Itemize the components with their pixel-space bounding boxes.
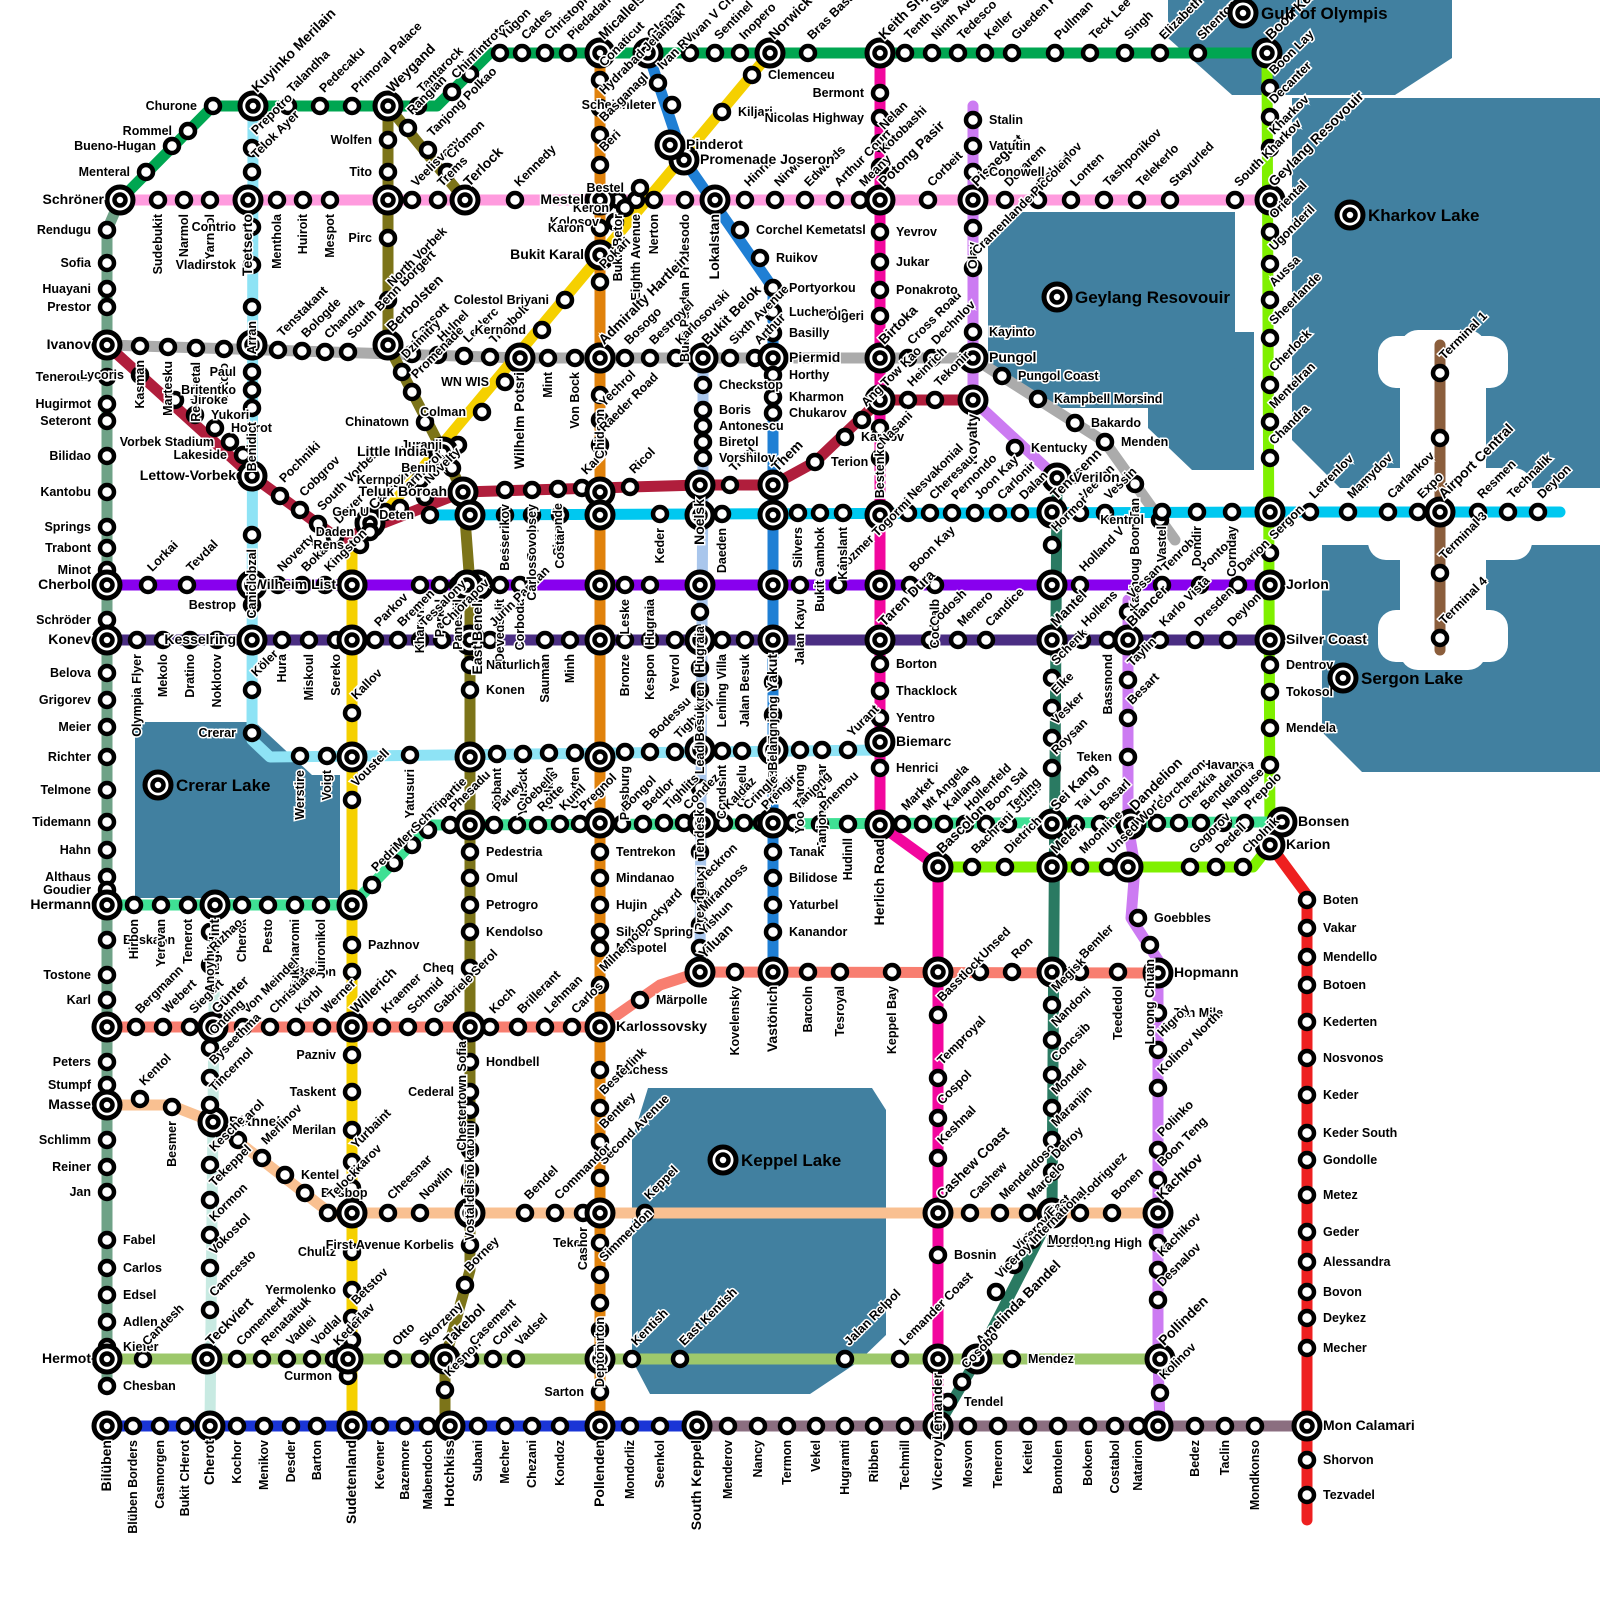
station-mendeldoso[interactable] [993, 1206, 1007, 1220]
station-marcelo[interactable] [1021, 1206, 1035, 1220]
station-christopher[interactable] [538, 46, 552, 60]
station-second-avenue[interactable] [593, 1171, 607, 1185]
interchange-junction[interactable] [1145, 1413, 1171, 1439]
station-narmol[interactable] [177, 193, 191, 207]
interchange-icon[interactable] [202, 892, 228, 918]
station-tidemann[interactable] [100, 815, 114, 829]
station-leclerc[interactable] [457, 349, 471, 363]
interchange-icon[interactable] [587, 744, 613, 770]
station-nirwin[interactable] [768, 193, 782, 207]
interchange-icon[interactable] [94, 627, 120, 653]
station-wn-wis[interactable] [498, 375, 512, 389]
interchange-icon[interactable] [867, 729, 893, 755]
station-borney[interactable] [458, 1278, 472, 1292]
station-lonten[interactable] [1064, 193, 1078, 207]
station-hourot[interactable] [208, 421, 222, 435]
lake-marker-geylang-resovouir[interactable] [1044, 284, 1070, 310]
station-mecher[interactable] [498, 1419, 512, 1433]
station-chesban[interactable] [100, 1379, 114, 1393]
interchange-konev[interactable] [94, 627, 120, 653]
station-camcesto[interactable] [203, 1303, 217, 1317]
station-dalan[interactable] [1013, 506, 1027, 520]
interchange-keith-shy[interactable] [867, 40, 893, 66]
station-cayten[interactable] [568, 746, 582, 760]
interchange-jorlon[interactable] [1257, 572, 1283, 598]
station-kharmon[interactable] [766, 390, 780, 404]
interchange-icon[interactable] [867, 812, 893, 838]
station-reiner[interactable] [100, 1160, 114, 1174]
station-clemenceu[interactable] [745, 68, 759, 82]
station-carlankov[interactable] [1381, 505, 1395, 519]
station-pazniv[interactable] [345, 1048, 359, 1062]
station-tevdal[interactable] [180, 578, 194, 592]
station-tentrekon[interactable] [593, 845, 607, 859]
station-gondolle[interactable] [1300, 1153, 1314, 1167]
station-tekonir[interactable] [928, 393, 942, 407]
interchange-icon[interactable] [587, 810, 613, 836]
station-lemander-coast[interactable] [893, 1352, 907, 1366]
station-nosvonos[interactable] [1300, 1051, 1314, 1065]
interchange-icon[interactable] [457, 1014, 483, 1040]
station-hinrin[interactable] [738, 193, 752, 207]
station-cholnik[interactable] [1236, 860, 1250, 874]
station-mondkonso[interactable] [1248, 1419, 1262, 1433]
station-keller[interactable] [978, 46, 992, 60]
interchange-icon[interactable] [587, 572, 613, 598]
station-termon[interactable] [780, 1419, 794, 1433]
station-menteral[interactable] [139, 165, 153, 179]
station-deylon[interactable] [1531, 505, 1545, 519]
station-chandra[interactable] [1263, 451, 1277, 465]
station-bontolen[interactable] [1051, 1419, 1065, 1433]
station-nancy[interactable] [751, 1419, 765, 1433]
interchange-junction[interactable] [94, 1014, 120, 1040]
station-alessandra[interactable] [1300, 1255, 1314, 1269]
interchange-icon[interactable] [339, 627, 365, 653]
station-technalik[interactable] [1501, 505, 1515, 519]
station-subani[interactable] [471, 1419, 485, 1433]
station-desder[interactable] [284, 1419, 298, 1433]
station-crerar[interactable] [245, 726, 259, 740]
interchange-icon[interactable] [587, 345, 613, 371]
interchange-icon[interactable] [235, 187, 261, 213]
interchange-junction[interactable] [687, 572, 713, 598]
station-barcoln[interactable] [801, 965, 815, 979]
station-chezani[interactable] [525, 1419, 539, 1433]
station-sofia[interactable] [100, 256, 114, 270]
station-comenterk[interactable] [230, 1352, 244, 1366]
interchange-bascolon[interactable] [925, 854, 951, 880]
interchange-junction[interactable] [1115, 854, 1141, 880]
station-yevrol[interactable] [668, 633, 682, 647]
station-kentel[interactable] [278, 1168, 292, 1182]
station-dondir[interactable] [1190, 505, 1204, 519]
station-bosogo[interactable] [618, 351, 632, 365]
station-vekel[interactable] [809, 1419, 823, 1433]
station-terminal-3[interactable] [1433, 566, 1447, 580]
station-candice[interactable] [979, 633, 993, 647]
interchange-airport-central[interactable] [1427, 499, 1453, 525]
station-keshnal[interactable] [931, 1151, 945, 1165]
interchange-hugirdint[interactable] [202, 892, 228, 918]
station-bilidose[interactable] [766, 871, 780, 885]
station-jukonaromi[interactable] [288, 898, 302, 912]
station-singh[interactable] [1118, 46, 1132, 60]
station-tesroyal[interactable] [833, 965, 847, 979]
station-bukit-cherot[interactable] [178, 1419, 192, 1433]
station-dedell[interactable] [1209, 860, 1223, 874]
interchange-cherbol[interactable] [94, 572, 120, 598]
station-bokoen[interactable] [1081, 1419, 1095, 1433]
station-condsint[interactable] [715, 744, 729, 758]
station-pungol-coast[interactable] [995, 369, 1009, 383]
interchange-icon[interactable] [375, 93, 401, 119]
interchange-yiluan[interactable] [687, 959, 713, 985]
station-pochniki[interactable] [273, 489, 287, 503]
station-bosbop[interactable] [298, 1186, 312, 1200]
interchange-icon[interactable] [867, 627, 893, 653]
station-redenetal[interactable] [189, 341, 203, 355]
station-seenkol[interactable] [653, 1419, 667, 1433]
station-menderov[interactable] [721, 1419, 735, 1433]
station-lorong-chuan[interactable] [1143, 938, 1157, 952]
station-desnalov[interactable] [1151, 1293, 1165, 1307]
station-scheichleter[interactable] [665, 98, 679, 112]
station-vorshilov[interactable] [696, 451, 710, 465]
station-metez[interactable] [1300, 1188, 1314, 1202]
interchange-mon-calamari[interactable] [1294, 1413, 1320, 1439]
interchange-icon[interactable] [452, 187, 478, 213]
station-checkstop[interactable] [696, 378, 710, 392]
station-joon-kay[interactable] [968, 506, 982, 520]
station-barton[interactable] [310, 1419, 324, 1433]
station-trent[interactable] [723, 478, 737, 492]
station-kampbell-morsind[interactable] [1031, 392, 1045, 406]
station-voigt[interactable] [320, 749, 334, 763]
station-chezkia[interactable] [1172, 816, 1186, 830]
station-tighnari[interactable] [668, 745, 682, 759]
station-ugonderil[interactable] [1263, 257, 1277, 271]
station-carlonir[interactable] [991, 506, 1005, 520]
station-geder[interactable] [1300, 1225, 1314, 1239]
interchange-icon[interactable] [339, 892, 365, 918]
interchange-icon[interactable] [760, 472, 786, 498]
station-hugraia[interactable] [693, 605, 707, 619]
interchange-royalty[interactable] [960, 387, 986, 413]
station-pirc[interactable] [381, 231, 395, 245]
station-bras-basah[interactable] [801, 46, 815, 60]
station-dempsey[interactable] [525, 483, 539, 497]
station-kondoz[interactable] [553, 1419, 567, 1433]
station-yarnbol[interactable] [203, 193, 217, 207]
station-cades[interactable] [515, 46, 529, 60]
station-dentrov[interactable] [1263, 658, 1277, 672]
station-tokosol[interactable] [1263, 685, 1277, 699]
interchange-junction[interactable] [335, 1346, 361, 1372]
station-besmer[interactable] [165, 1100, 179, 1114]
station-techmill[interactable] [898, 1419, 912, 1433]
interchange-bil-ben[interactable] [94, 1413, 120, 1439]
station-viceroy-international[interactable] [989, 1285, 1003, 1299]
station-paul[interactable] [245, 365, 259, 379]
station-tranbolt[interactable] [483, 350, 497, 364]
station-moonline[interactable] [1073, 860, 1087, 874]
station-dietrich[interactable] [998, 860, 1012, 874]
station-tezvadel[interactable] [1300, 1488, 1314, 1502]
interchange-junction[interactable] [457, 744, 483, 770]
station-deten[interactable] [423, 508, 437, 522]
station-shenton-way[interactable] [1191, 46, 1205, 60]
station-vadsel[interactable] [509, 1352, 523, 1366]
station-inopero[interactable] [733, 46, 747, 60]
station-edsel[interactable] [100, 1288, 114, 1302]
station-omul[interactable] [463, 871, 477, 885]
station-east-kentish[interactable] [673, 1352, 687, 1366]
station-jukar[interactable] [873, 255, 887, 269]
interchange-hermot[interactable] [94, 1346, 120, 1372]
interchange-berbolsten[interactable] [375, 332, 401, 358]
interchange-icon[interactable] [239, 627, 265, 653]
interchange-icon[interactable] [339, 1014, 365, 1040]
station-corbeit[interactable] [921, 193, 935, 207]
station-ricol[interactable] [623, 480, 637, 494]
station-kolinov[interactable] [1153, 1386, 1167, 1400]
station-colman[interactable] [475, 405, 489, 419]
station-bendel[interactable] [518, 1206, 532, 1220]
station-renataituk[interactable] [255, 1352, 269, 1366]
station-yurant[interactable] [841, 743, 855, 757]
lake-marker-gulf-of-olympis[interactable] [1230, 0, 1256, 26]
station-petsburg[interactable] [618, 745, 632, 759]
interchange-icon[interactable] [760, 810, 786, 836]
interchange-icon[interactable] [94, 892, 120, 918]
station-schmid[interactable] [401, 1020, 415, 1034]
station-telmone[interactable] [100, 783, 114, 797]
interchange-icon[interactable] [587, 502, 613, 528]
station-boten[interactable] [1300, 893, 1314, 907]
station-bueno-hugan[interactable] [165, 139, 179, 153]
interchange-icon[interactable] [657, 132, 683, 158]
station-havanna[interactable] [1263, 758, 1277, 772]
station-keitel[interactable] [1021, 1419, 1035, 1433]
station-grigorev[interactable] [100, 693, 114, 707]
interchange-icon[interactable] [702, 187, 728, 213]
station-sudebukit[interactable] [151, 193, 165, 207]
interchange-icon[interactable] [457, 744, 483, 770]
station-terminal-2[interactable] [1433, 431, 1447, 445]
interchange-yakut[interactable] [760, 627, 786, 653]
station-kanandor[interactable] [766, 925, 780, 939]
station-cheresau[interactable] [923, 506, 937, 520]
station-mispotel[interactable] [593, 941, 607, 955]
station-schlimm[interactable] [100, 1133, 114, 1147]
station-olav[interactable] [966, 221, 980, 235]
interchange-junction[interactable] [587, 502, 613, 528]
station-pesto[interactable] [261, 898, 275, 912]
station-corchel-kemetatsl[interactable] [733, 223, 747, 237]
station-hirbon[interactable] [127, 898, 141, 912]
station-besart[interactable] [1121, 711, 1135, 725]
station-simmerdon[interactable] [593, 1268, 607, 1282]
station-pokari[interactable] [593, 275, 607, 289]
station-kernond[interactable] [535, 323, 549, 337]
interchange-icon[interactable] [1145, 1413, 1171, 1439]
station-teck-lee[interactable] [1083, 46, 1097, 60]
station-vatutin[interactable] [966, 139, 980, 153]
station-botoen[interactable] [1300, 978, 1314, 992]
interchange-icon[interactable] [1039, 572, 1065, 598]
station-huayani[interactable] [100, 282, 114, 296]
station-karl[interactable] [100, 993, 114, 1007]
interchange-icon[interactable] [375, 332, 401, 358]
station-colestol-briyani[interactable] [558, 293, 572, 307]
station-thacklock[interactable] [873, 684, 887, 698]
interchange-icon[interactable] [587, 1200, 613, 1226]
station-keron[interactable] [618, 201, 632, 215]
station-lorkai[interactable] [141, 578, 155, 592]
station-lehman[interactable] [538, 1020, 552, 1034]
interchange-junction[interactable] [457, 1014, 483, 1040]
station-konen[interactable] [463, 683, 477, 697]
station-chandra[interactable] [318, 345, 332, 359]
station-yugon[interactable] [493, 46, 507, 60]
station-hura[interactable] [275, 633, 289, 647]
station-keder[interactable] [1300, 1088, 1314, 1102]
interchange-potong-pasir[interactable] [867, 187, 893, 213]
station-arran[interactable] [245, 300, 259, 314]
station-mt-angela[interactable] [916, 817, 930, 831]
station-hugirmot[interactable] [100, 397, 114, 411]
interchange-junction[interactable] [339, 572, 365, 598]
interchange-icon[interactable] [94, 572, 120, 598]
station-bremen[interactable] [391, 633, 405, 647]
interchange-icon[interactable] [760, 572, 786, 598]
interchange-icon[interactable] [690, 345, 716, 371]
station-minh[interactable] [563, 633, 577, 647]
station-mendello[interactable] [1300, 950, 1314, 964]
station-christiane[interactable] [263, 1020, 277, 1034]
station-bilidao[interactable] [100, 449, 114, 463]
station-bazemore[interactable] [398, 1419, 412, 1433]
station-shorvon[interactable] [1300, 1453, 1314, 1467]
interchange-junction[interactable] [339, 892, 365, 918]
station-bakardo[interactable] [1068, 416, 1082, 430]
interchange-icon[interactable] [867, 187, 893, 213]
station-tobant[interactable] [490, 747, 504, 761]
station-petrogro[interactable] [463, 898, 477, 912]
station-ruikov[interactable] [753, 251, 767, 265]
station-antonescu[interactable] [696, 419, 710, 433]
station-menden[interactable] [1098, 435, 1112, 449]
station-wolfen[interactable] [381, 133, 395, 147]
interchange-taren-dura[interactable] [867, 627, 893, 653]
interchange-icon[interactable] [760, 959, 786, 985]
station-sixth-avenue[interactable] [723, 351, 737, 365]
station-juironikol[interactable] [314, 898, 328, 912]
station-dresden[interactable] [1188, 633, 1202, 647]
station-tashponikov[interactable] [1097, 193, 1111, 207]
station-dekarem[interactable] [998, 193, 1012, 207]
station-siegert[interactable] [183, 1020, 197, 1034]
interchange-pinderot[interactable] [657, 132, 683, 158]
station-hulkon[interactable] [542, 746, 556, 760]
interchange-icon[interactable] [507, 345, 533, 371]
interchange-icon[interactable] [197, 1413, 223, 1439]
station-karpov[interactable] [838, 430, 852, 444]
station-terion[interactable] [808, 455, 822, 469]
station-cobgrov[interactable] [293, 503, 307, 517]
station-mabendoch[interactable] [421, 1419, 435, 1433]
station-ang-tow-kao[interactable] [855, 413, 869, 427]
station-kallov[interactable] [345, 706, 359, 720]
interchange-junction[interactable] [587, 810, 613, 836]
station-caniclobzal[interactable] [245, 528, 259, 542]
interchange-icon[interactable] [339, 1413, 365, 1439]
station-carlos[interactable] [565, 1020, 579, 1034]
station-aussa[interactable] [1263, 293, 1277, 307]
station-pedrin[interactable] [365, 878, 379, 892]
interchange-junction[interactable] [760, 810, 786, 836]
interchange-kachkov[interactable] [1145, 1200, 1171, 1226]
interchange-icon[interactable] [94, 1413, 120, 1439]
station-nowlin[interactable] [413, 1206, 427, 1220]
interchange-junction[interactable] [867, 572, 893, 598]
station-cherlock[interactable] [1263, 378, 1277, 392]
interchange-icon[interactable] [339, 572, 365, 598]
station-vadlei[interactable] [280, 1352, 294, 1366]
station-olgeri[interactable] [873, 309, 887, 323]
interchange-icon[interactable] [867, 572, 893, 598]
station-promenade[interactable] [405, 385, 419, 399]
station-seteront[interactable] [100, 414, 114, 428]
station-mendela[interactable] [1263, 721, 1277, 735]
station-meier[interactable] [100, 720, 114, 734]
interchange-biemarc[interactable] [867, 729, 893, 755]
station-sheerlande[interactable] [1263, 331, 1277, 345]
station-yevrov[interactable] [873, 225, 887, 239]
interchange-junction[interactable] [1039, 854, 1065, 880]
station-silvers[interactable] [791, 506, 805, 520]
station-brillerant[interactable] [511, 1020, 525, 1034]
station-hugramti[interactable] [838, 1419, 852, 1433]
interchange-icon[interactable] [1294, 1413, 1320, 1439]
station-pedestria[interactable] [463, 845, 477, 859]
station-keppel-bay[interactable] [885, 965, 899, 979]
interchange-icon[interactable] [437, 1413, 463, 1439]
station-leske[interactable] [618, 578, 632, 592]
interchange-cashew-coast[interactable] [925, 1200, 951, 1226]
station-tenth-star-alexander[interactable] [898, 46, 912, 60]
station-bovon[interactable] [1300, 1285, 1314, 1299]
station-pullman[interactable] [1048, 46, 1062, 60]
station-tanak[interactable] [766, 845, 780, 859]
station-bonen[interactable] [1105, 1206, 1119, 1220]
station-nerton[interactable] [647, 193, 661, 207]
station-huiroit[interactable] [296, 193, 310, 207]
interchange-icon[interactable] [867, 40, 893, 66]
interchange-them[interactable] [760, 472, 786, 498]
station-cornday[interactable] [1225, 505, 1239, 519]
station-bukit-gambok[interactable] [813, 506, 827, 520]
station-lenling-villa[interactable] [715, 633, 729, 647]
lake-marker-crerar-lake[interactable] [145, 772, 171, 798]
interchange-icon[interactable] [194, 1346, 220, 1372]
station-teededol[interactable] [1111, 965, 1125, 979]
station-bergmann[interactable] [129, 1020, 143, 1034]
station-parley[interactable] [487, 818, 501, 832]
interchange-icon[interactable] [1257, 572, 1283, 598]
station-menero[interactable] [951, 633, 965, 647]
